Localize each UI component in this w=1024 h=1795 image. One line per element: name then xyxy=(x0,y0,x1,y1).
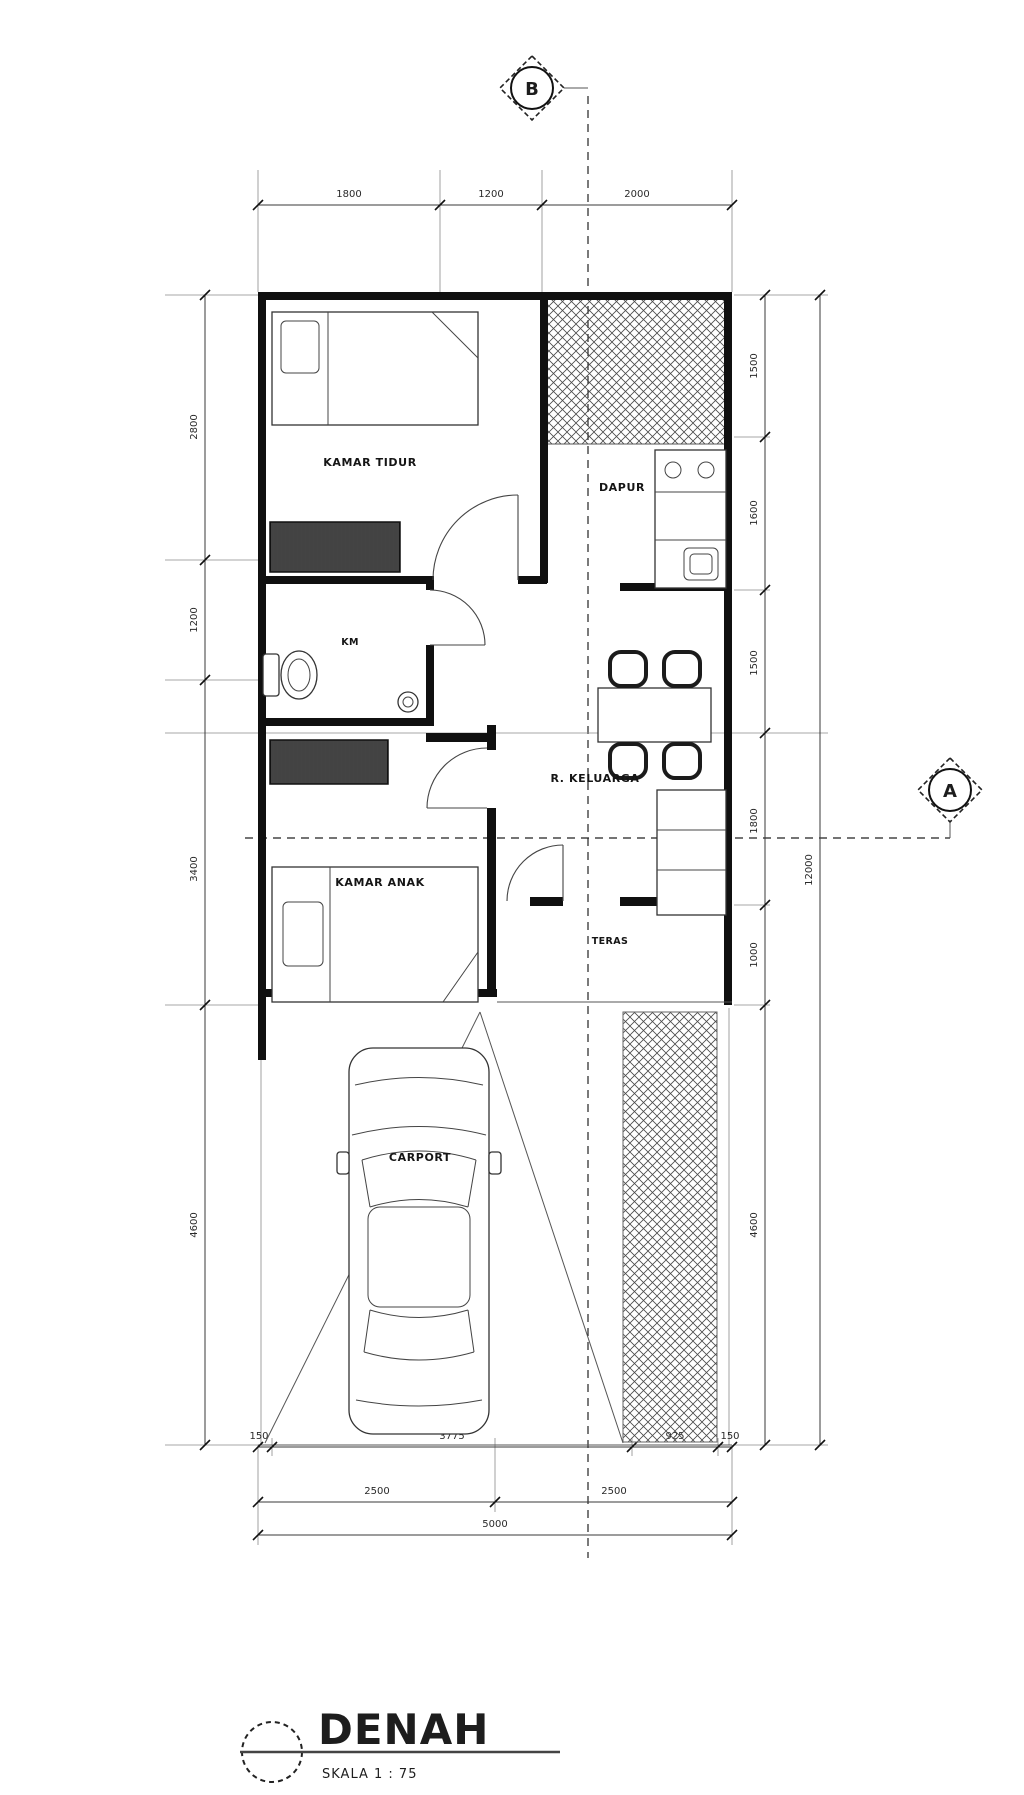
dim-top-2: 1200 xyxy=(478,189,503,200)
wall-bedroom1-bottom-stub xyxy=(518,576,547,584)
dim-right-5: 1000 xyxy=(749,942,760,967)
floor-plan-svg: B A xyxy=(0,0,1024,1795)
dimension-chain-top: 1800 1200 2000 xyxy=(253,189,737,210)
dim-left-3: 3400 xyxy=(189,856,200,881)
wall-bedroom2-right-upper xyxy=(487,725,496,750)
room-label-family-room: R. KELUARGA xyxy=(550,772,639,785)
wardrobe-2 xyxy=(270,740,388,784)
chair xyxy=(610,652,646,686)
dimension-chain-bottom: 150 3775 925 150 2500 2500 5000 xyxy=(249,1431,739,1540)
hatched-service-area xyxy=(547,295,725,444)
wall-entrance-left xyxy=(530,897,563,906)
carport-area xyxy=(265,1012,623,1443)
room-label-bedroom2: KAMAR ANAK xyxy=(335,876,425,889)
room-label-kitchen: DAPUR xyxy=(599,481,645,494)
wall-top xyxy=(258,292,732,300)
bed-1 xyxy=(272,312,478,425)
dimension-chain-right-total: 12000 xyxy=(804,290,825,1450)
dim-right-2: 1600 xyxy=(749,500,760,525)
dim-bottom-r1-1: 150 xyxy=(249,1431,268,1442)
room-label-carport: CARPORT xyxy=(389,1151,451,1164)
dim-right-1: 1500 xyxy=(749,353,760,378)
dimension-chain-left: 2800 1200 3400 4600 xyxy=(189,290,210,1450)
dim-left-1: 2800 xyxy=(189,414,200,439)
car xyxy=(337,1048,501,1434)
dim-right-3: 1500 xyxy=(749,650,760,675)
dim-bottom-r2-2: 2500 xyxy=(601,1486,626,1497)
bathroom-drain xyxy=(398,692,418,712)
drawing-scale: SKALA 1 : 75 xyxy=(322,1767,417,1782)
title-block: DENAH SKALA 1 : 75 xyxy=(240,1705,560,1782)
dim-bottom-total: 5000 xyxy=(482,1519,507,1530)
dim-right-total: 12000 xyxy=(804,854,815,886)
door-arc-bedroom1 xyxy=(433,495,518,580)
wall-bedroom1-bottom xyxy=(258,576,433,584)
room-label-bedroom1: KAMAR TIDUR xyxy=(323,456,417,469)
chair xyxy=(664,652,700,686)
floorplan-page: B A xyxy=(0,0,1024,1795)
section-a-label: A xyxy=(943,781,957,802)
room-label-bathroom: KM xyxy=(341,637,359,648)
car-mirror-left xyxy=(337,1152,349,1174)
wall-bedroom2-right-lower xyxy=(487,808,496,997)
drawing-title: DENAH xyxy=(318,1705,489,1754)
wardrobe-1 xyxy=(270,522,400,572)
door-arc-bedroom2 xyxy=(427,748,487,808)
wall-km-bottom xyxy=(258,718,434,726)
section-line-b: B xyxy=(500,56,588,1558)
chair xyxy=(664,744,700,778)
room-label-porch: TERAS xyxy=(592,936,628,947)
wall-left xyxy=(258,292,266,1005)
dining-set xyxy=(598,652,711,778)
wall-km-right-lower xyxy=(426,645,434,725)
kitchen-counter xyxy=(655,450,726,588)
dim-left-4: 4600 xyxy=(189,1212,200,1237)
dim-top-1: 1800 xyxy=(336,189,361,200)
door-arc-bathroom xyxy=(430,590,485,645)
dim-right-4: 1800 xyxy=(749,808,760,833)
car-mirror-right xyxy=(489,1152,501,1174)
dimension-chain-right-inner: 1500 1600 1500 1800 1000 4600 xyxy=(749,290,770,1450)
dim-right-6: 4600 xyxy=(749,1212,760,1237)
toilet xyxy=(263,651,317,699)
dim-bottom-r1-4: 150 xyxy=(720,1431,739,1442)
dim-top-3: 2000 xyxy=(624,189,649,200)
dim-bottom-r2-1: 2500 xyxy=(364,1486,389,1497)
hatched-garden-strip xyxy=(623,1012,717,1442)
dim-left-2: 1200 xyxy=(189,607,200,632)
family-room-cabinet xyxy=(657,790,726,915)
wall-kitchen-left xyxy=(540,295,548,583)
carport-diagonal-right xyxy=(480,1012,623,1443)
wall-hall-stub xyxy=(426,733,496,742)
wall-carport-stub xyxy=(258,1005,266,1060)
section-b-label: B xyxy=(525,79,539,100)
door-arc-entrance xyxy=(507,845,563,901)
